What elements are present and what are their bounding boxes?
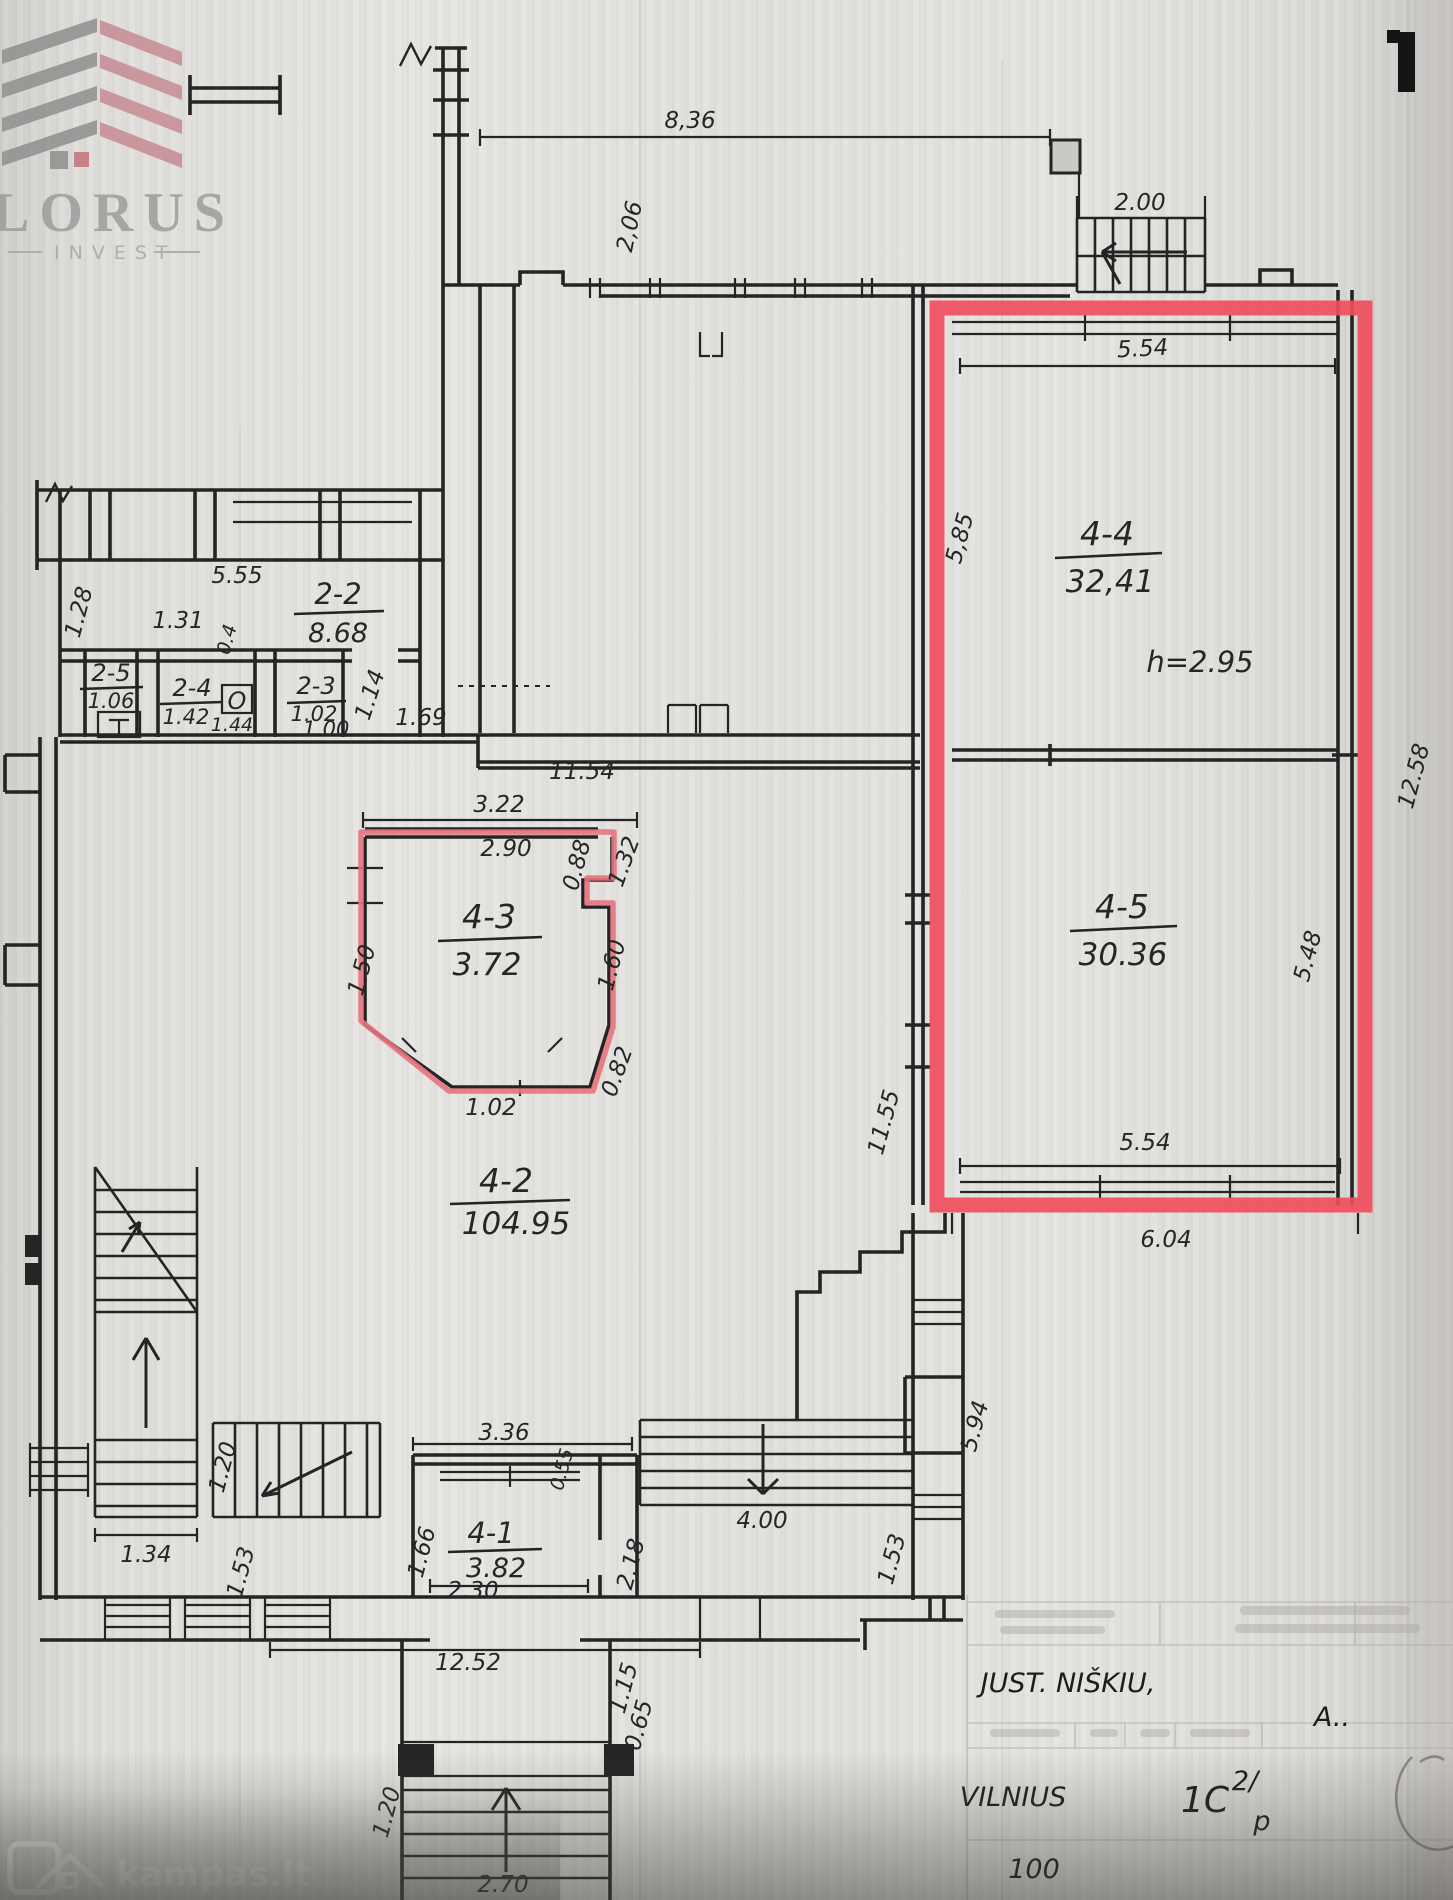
dim-400: 4.00 xyxy=(736,1508,787,1534)
dim-088: 0.88 xyxy=(558,837,596,893)
room-label-4-4: 4-4 32,41 xyxy=(1055,514,1162,600)
room-id: 4-4 xyxy=(1080,514,1134,553)
page-edge-shadow xyxy=(1414,0,1453,1900)
lorus-logo: LORUS INVEST xyxy=(0,18,235,264)
dim-r45-width: 5.54 xyxy=(1119,1130,1170,1156)
room-id: 2-5 xyxy=(91,659,130,687)
room-label-2-5: 2-5 1.06 xyxy=(80,659,143,713)
dim-r44-height: 5,85 xyxy=(941,510,979,566)
dim-left-height: 11.55 xyxy=(863,1087,905,1157)
stair-arrow-icon xyxy=(133,1338,159,1428)
room-id: 4-3 xyxy=(462,897,516,936)
room-id: 4-5 xyxy=(1095,887,1149,926)
lorus-logo-name: LORUS xyxy=(0,182,235,244)
room-area: 104.95 xyxy=(462,1206,570,1242)
fraction-line xyxy=(448,1549,542,1552)
sheet-corner-mark xyxy=(1387,30,1415,92)
dim-102: 1.02 xyxy=(465,1095,516,1121)
ceiling-height-note: h=2.95 xyxy=(1146,645,1253,679)
room-id: 4-2 xyxy=(479,1161,533,1200)
fraction-line xyxy=(450,1200,570,1204)
room-area: 3.72 xyxy=(452,947,521,983)
dim-bay-outer: 3.22 xyxy=(473,792,524,818)
initials-hand: A.. xyxy=(1312,1702,1350,1733)
fraction-line xyxy=(294,611,384,614)
stair-arrow-icon xyxy=(748,1424,778,1494)
lorus-logo-subtitle: INVEST xyxy=(54,242,177,264)
room-id: 2-2 xyxy=(314,577,361,611)
dim-top-span: 8,36 xyxy=(664,108,715,134)
dim-336: 3.36 xyxy=(478,1420,529,1446)
dim-153-right: 1.53 xyxy=(873,1531,911,1587)
room-id: 2-4 xyxy=(172,674,211,702)
dim-055: 0.55 xyxy=(546,1446,578,1493)
room-area-2: 1.00 xyxy=(303,717,350,741)
scan-shadow-left xyxy=(0,1790,560,1900)
chimney-block xyxy=(1051,140,1080,173)
dim-169: 1.69 xyxy=(395,705,446,731)
wall-path xyxy=(5,48,1358,1900)
wall-pier xyxy=(25,1263,39,1285)
stair-arrow-icon xyxy=(1102,243,1187,284)
stair-arrow-icon xyxy=(122,1222,140,1252)
dim-134: 1.34 xyxy=(120,1542,171,1568)
dim-r44-width: 5.54 xyxy=(1116,335,1169,364)
dim-red-bottom: 6.04 xyxy=(1140,1227,1191,1253)
lorus-building-icon xyxy=(2,18,182,169)
stair-arrow-icon xyxy=(262,1452,352,1496)
wall-pier xyxy=(25,1235,39,1257)
room-area: 1.06 xyxy=(88,689,135,713)
room-area: 1.42 xyxy=(163,705,210,729)
room-label-2-3: 2-3 1.02 1.00 xyxy=(287,672,349,741)
room-label-4-2: 4-2 104.95 xyxy=(450,1161,570,1242)
dim-128: 1.28 xyxy=(60,584,98,640)
dim-114: 1.14 xyxy=(350,666,391,723)
fraction-line xyxy=(438,937,542,941)
dim-r45-height: 5.48 xyxy=(1289,928,1327,984)
dim-153-left: 1.53 xyxy=(222,1544,260,1600)
floorplan-canvas: 8,36 2,06 2.00 5.54 5,85 12.58 5.48 11.5… xyxy=(0,0,1453,1900)
dim-218: 2.18 xyxy=(612,1536,650,1592)
dim-wing-top: 5.55 xyxy=(211,563,262,589)
room-label-4-5: 4-5 30.36 xyxy=(1070,887,1177,973)
dimension-labels: 8,36 2,06 2.00 5.54 5,85 12.58 5.48 11.5… xyxy=(60,108,1435,1898)
room-area: 32,41 xyxy=(1066,564,1155,600)
fraction-line xyxy=(1055,553,1162,558)
dim-131: 1.31 xyxy=(152,608,203,634)
fixtures xyxy=(25,30,1415,1776)
scanned-floorplan-page: 8,36 2,06 2.00 5.54 5,85 12.58 5.48 11.5… xyxy=(0,0,1453,1900)
dim-bay-inner: 2.90 xyxy=(480,836,531,862)
room-id: 2-3 xyxy=(296,672,335,700)
dim-150: 1.50 xyxy=(343,942,381,998)
dim-bottom-span: 12.52 xyxy=(435,1650,501,1676)
room-id: 4-1 xyxy=(467,1516,514,1550)
dim-corridor: 11.54 xyxy=(549,759,615,785)
fixture-letter: O xyxy=(228,687,247,715)
walls xyxy=(5,48,1358,1900)
break-mark-icon xyxy=(46,44,431,502)
dim-166: 1.66 xyxy=(403,1524,441,1580)
room-area: 3.82 xyxy=(466,1553,526,1584)
room-area: 30.36 xyxy=(1079,937,1168,973)
room-area: 8.68 xyxy=(308,618,368,649)
fraction-line xyxy=(160,702,223,704)
dim-120-stair: 1.20 xyxy=(204,1439,242,1495)
room-label-4-1: 4-1 3.82 xyxy=(448,1516,542,1584)
street-handwriting: JUST. NIŠKIU, xyxy=(976,1667,1156,1699)
dim-stair-width: 2.00 xyxy=(1114,190,1165,216)
dim-160: 1.60 xyxy=(593,937,631,993)
sink-symbol-icon xyxy=(109,720,129,735)
dim-144: 1.44 xyxy=(211,714,253,736)
room-label-4-3: 4-3 3.72 xyxy=(438,897,542,983)
dim-wing-height: 2,06 xyxy=(612,199,648,255)
room-label-2-2: 2-2 8.68 xyxy=(294,577,384,649)
fraction-line xyxy=(1070,926,1177,931)
